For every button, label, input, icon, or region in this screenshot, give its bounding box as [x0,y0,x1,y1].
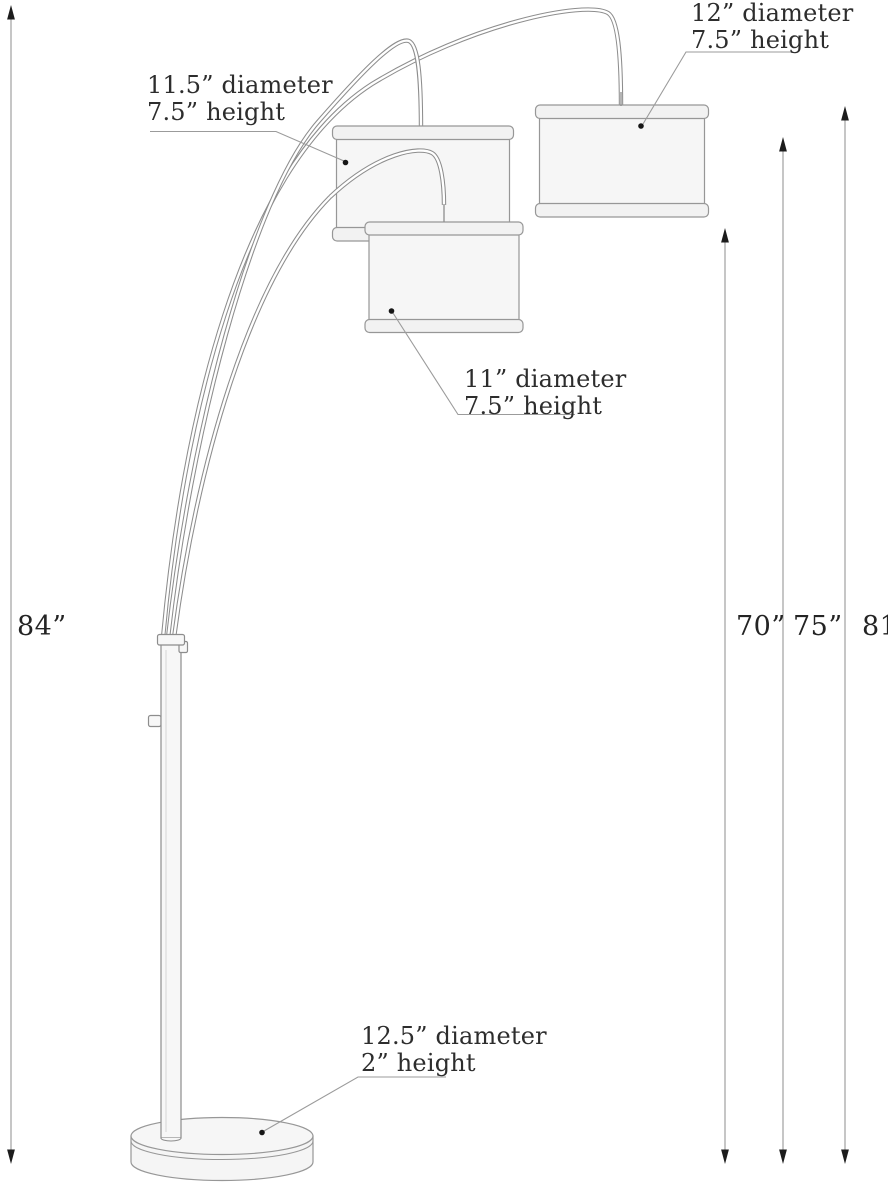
diagram-artwork [0,0,888,1185]
arrowhead-down-icon [779,1150,787,1165]
dimension-arrow-84 [7,5,15,1164]
lamp-pole [149,635,188,1142]
arrowhead-down-icon [721,1150,729,1165]
arrowhead-up-icon [721,228,729,243]
callout-base: 12.5” diameter 2” height [361,1023,547,1077]
callout-shade-right-line2: 7.5” height [691,27,853,54]
callout-base-line1: 12.5” diameter [361,1023,547,1050]
arrowhead-down-icon [7,1150,15,1165]
dimension-label-70: 70” [736,612,786,642]
lamp-base [131,1118,313,1181]
callout-shade-center-line2: 7.5” height [464,393,626,420]
lamp-shade-right [536,105,709,217]
callout-shade-center-line1: 11” diameter [464,366,626,393]
callout-shade-center: 11” diameter 7.5” height [464,366,626,420]
arrowhead-down-icon [841,1150,849,1165]
callout-shade-mid: 11.5” diameter 7.5” height [147,72,333,126]
arrowhead-up-icon [7,5,15,20]
callout-shade-mid-line1: 11.5” diameter [147,72,333,99]
leader-base [264,1077,446,1131]
dimension-arrow-70 [721,228,729,1164]
callout-shade-mid-line2: 7.5” height [147,99,333,126]
pole-collar [158,635,185,646]
arrowhead-up-icon [779,137,787,152]
lamp-shade-center [365,222,523,333]
dimmer-switch [149,716,162,727]
dimension-arrow-75 [779,137,787,1164]
arrowhead-up-icon [841,106,849,121]
dimension-label-84: 84” [17,612,67,642]
lamp-dimension-diagram: 11.5” diameter 7.5” height 12” diameter … [0,0,888,1185]
callout-base-line2: 2” height [361,1050,547,1077]
dimension-label-75: 75” [793,612,843,642]
dimension-label-81: 81” [862,612,888,642]
callout-shade-right: 12” diameter 7.5” height [691,0,853,54]
callout-shade-right-line1: 12” diameter [691,0,853,27]
